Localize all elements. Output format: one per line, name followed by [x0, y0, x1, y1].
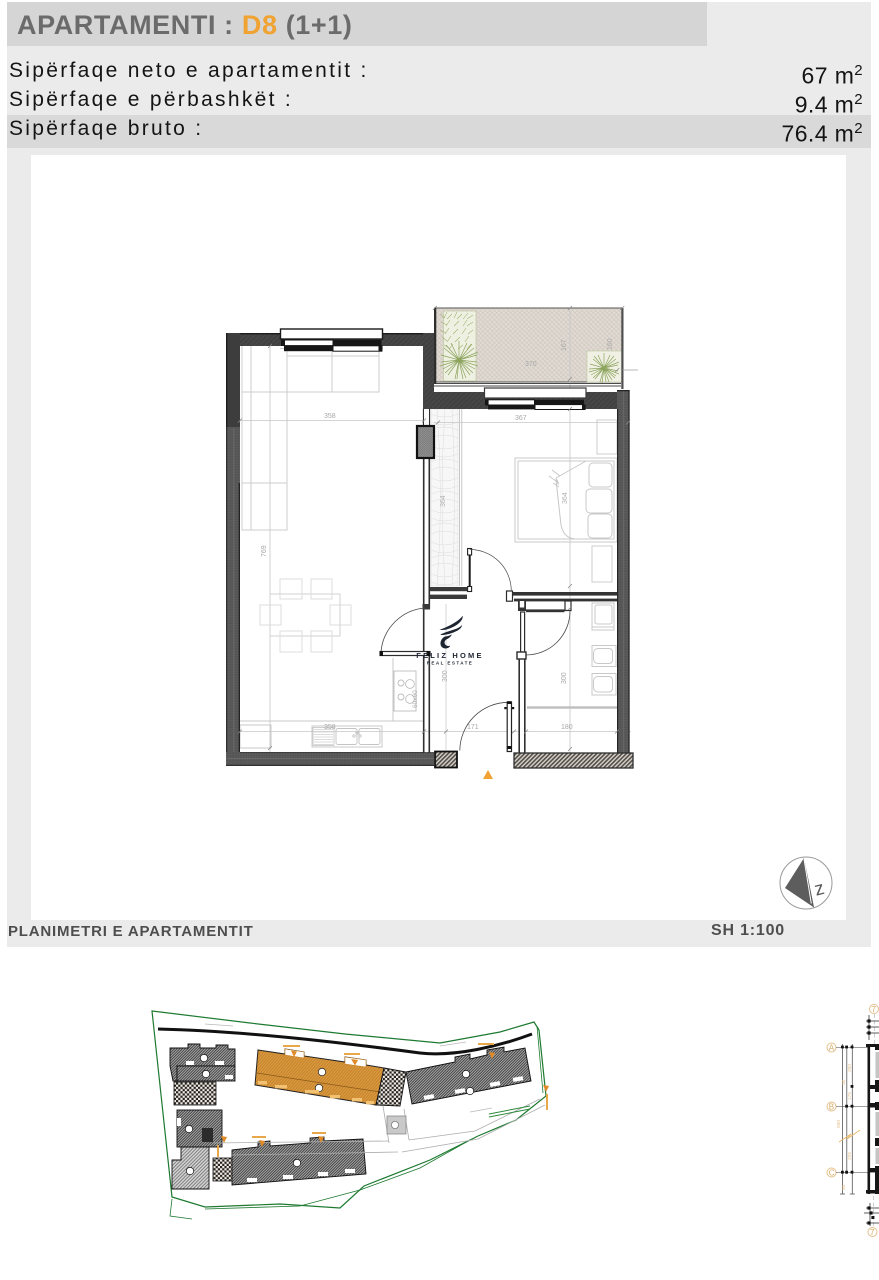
- svg-text:290: 290: [847, 1064, 853, 1072]
- svg-text:60x60: 60x60: [412, 690, 419, 708]
- svg-text:364: 364: [440, 495, 447, 507]
- svg-text:B: B: [829, 1103, 834, 1112]
- svg-text:590: 590: [836, 1120, 842, 1128]
- svg-text:358: 358: [324, 413, 336, 420]
- svg-text:175: 175: [847, 1092, 853, 1100]
- svg-text:160: 160: [607, 338, 614, 350]
- svg-text:REAL ESTATE: REAL ESTATE: [427, 661, 474, 666]
- svg-text:300: 300: [442, 670, 449, 682]
- svg-text:C: C: [829, 1169, 835, 1178]
- svg-text:7: 7: [870, 1228, 875, 1237]
- svg-text:205: 205: [847, 1152, 853, 1160]
- svg-text:30: 30: [841, 1079, 847, 1085]
- svg-text:364: 364: [562, 492, 569, 504]
- svg-text:A: A: [829, 1044, 835, 1053]
- svg-text:370: 370: [525, 361, 537, 368]
- svg-text:180: 180: [561, 724, 573, 731]
- svg-text:300: 300: [561, 672, 568, 684]
- svg-text:FELIZ HOME: FELIZ HOME: [416, 651, 483, 660]
- svg-text:55: 55: [841, 1184, 847, 1190]
- svg-text:171: 171: [467, 724, 479, 731]
- svg-text:367: 367: [515, 415, 527, 422]
- svg-text:167: 167: [561, 339, 568, 351]
- svg-text:7: 7: [872, 1005, 877, 1014]
- svg-text:358: 358: [324, 724, 336, 731]
- svg-text:769: 769: [261, 545, 268, 557]
